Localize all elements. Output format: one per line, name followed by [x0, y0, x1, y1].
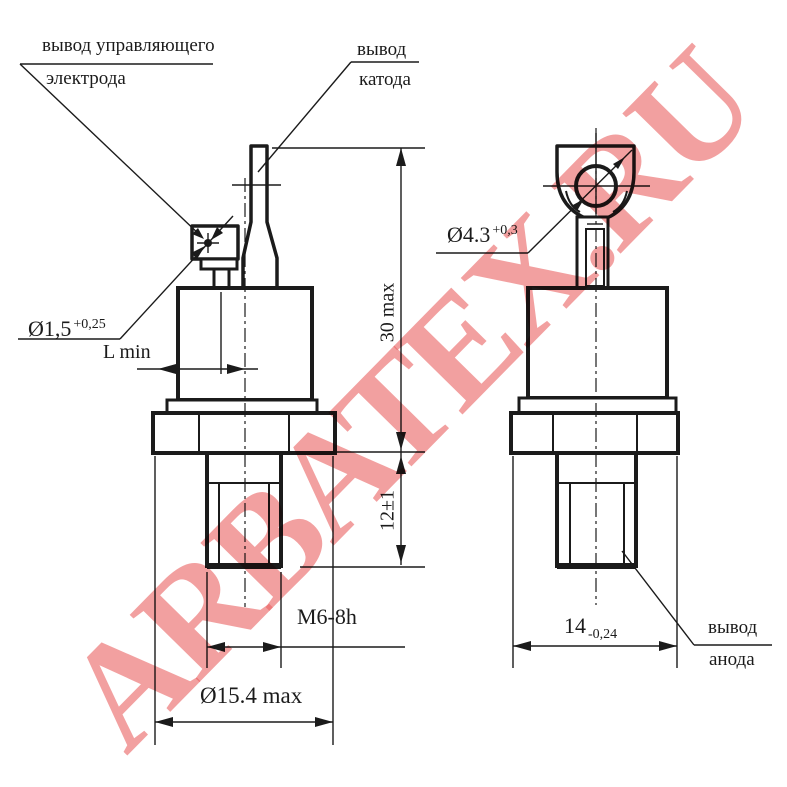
cathode-pin — [243, 146, 277, 288]
gate-electrode-label-line2: электрода — [46, 67, 126, 91]
anode-label-line2: анода — [709, 648, 755, 672]
gate-hole-diameter: Ø1,5+0,25 — [28, 316, 106, 342]
across-flats-tolerance: -0,24 — [588, 627, 617, 642]
l-min-dimension: L min — [103, 341, 151, 364]
step-right — [519, 398, 676, 413]
anode-label-line1: вывод — [708, 616, 757, 640]
gate-hole-tolerance: +0,25 — [73, 317, 105, 332]
gate-electrode-label-line1: вывод управляющего — [42, 34, 215, 58]
technical-drawing: вывод управляющего электрода вывод катод… — [0, 0, 787, 787]
cathode-label-line2: катода — [359, 68, 411, 92]
flange-right — [511, 413, 678, 453]
cathode-label-line1: вывод — [357, 38, 406, 62]
across-flats-dimension: 14-0,24 — [564, 613, 617, 639]
